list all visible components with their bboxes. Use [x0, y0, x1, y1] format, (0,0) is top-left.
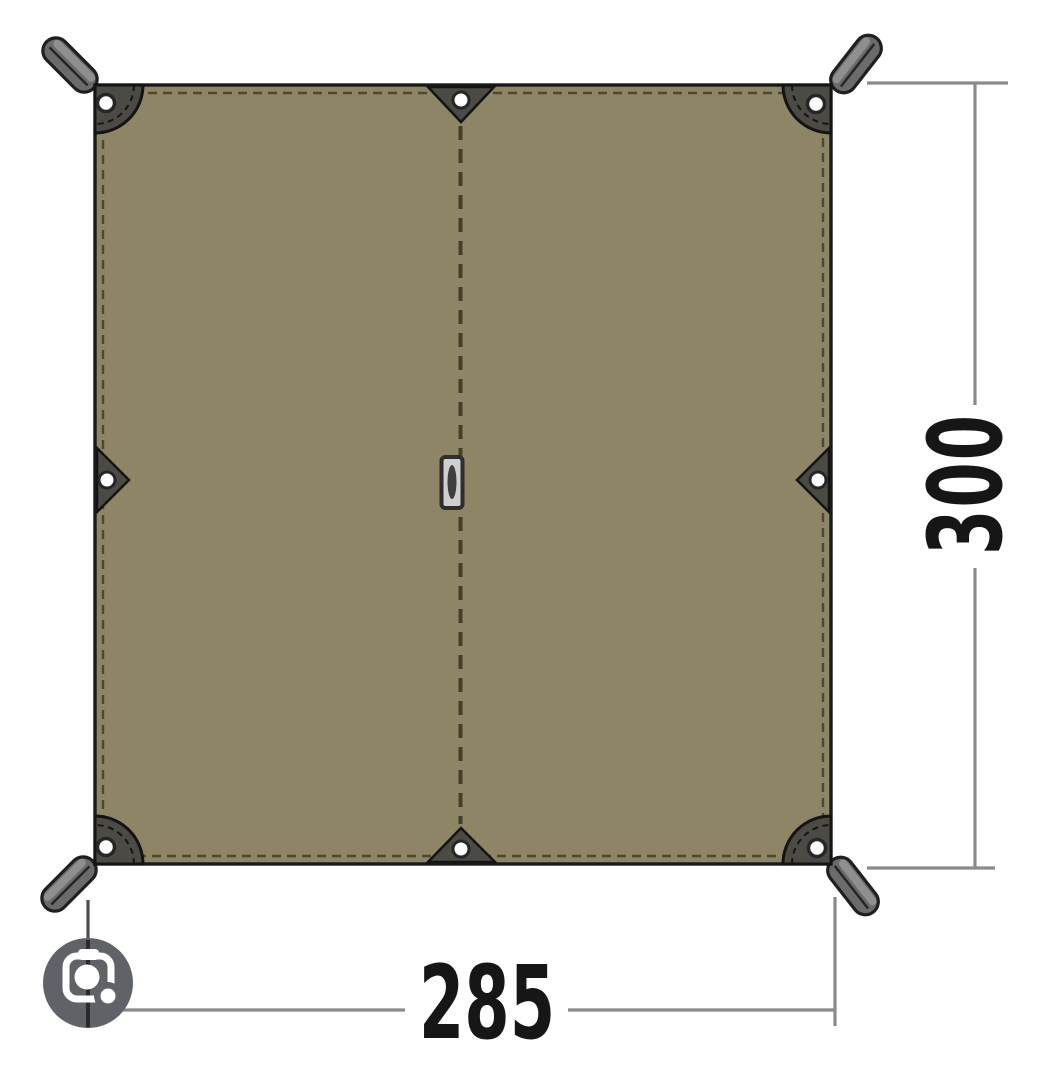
product-diagram-image: 285 300: [0, 0, 1052, 1080]
corner-grommet-top-left: [98, 95, 115, 112]
corner-grommet-top-right: [808, 96, 825, 113]
height-dimension-label: 300: [908, 413, 1026, 555]
tieout-grommet-top: [453, 92, 469, 108]
tieout-grommet-left: [99, 472, 115, 488]
lens-search-button[interactable]: [43, 938, 133, 1028]
center-hang-loop: [442, 457, 463, 508]
corner-grommet-bottom-right: [809, 840, 826, 857]
tieout-grommet-right: [810, 472, 826, 488]
corner-grommet-bottom-left: [98, 839, 115, 856]
tieout-grommet-bottom: [453, 841, 469, 857]
width-dimension-label: 285: [419, 945, 555, 1063]
